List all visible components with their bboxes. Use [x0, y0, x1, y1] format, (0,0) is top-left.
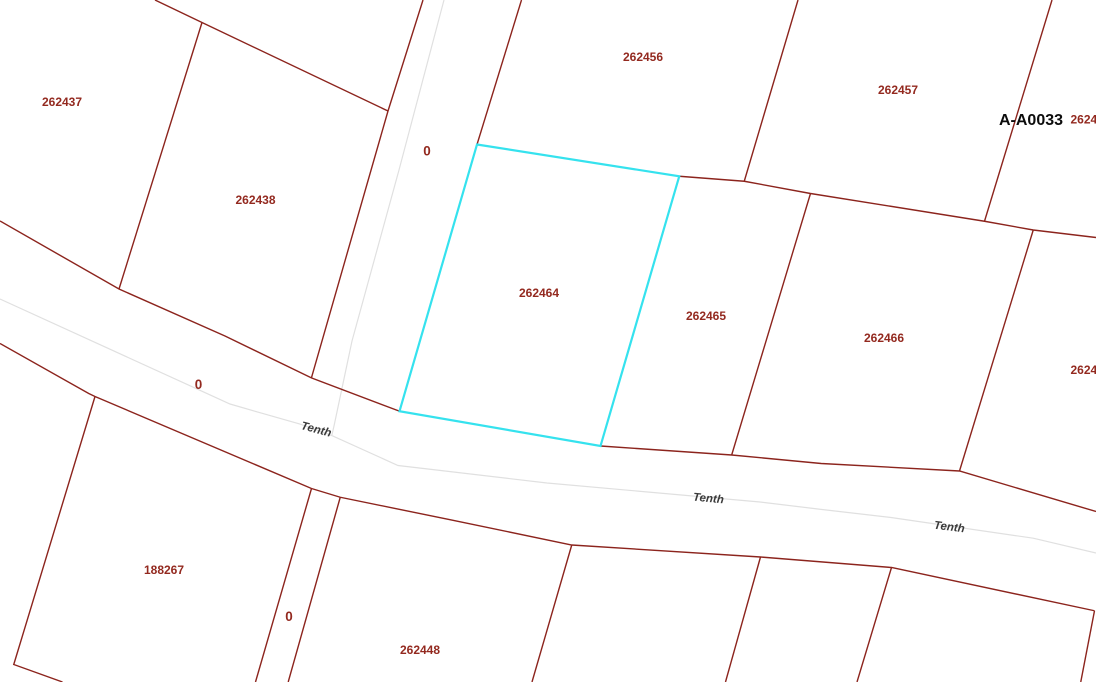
svg-text:262438: 262438 — [235, 193, 275, 207]
svg-text:2624: 2624 — [1071, 113, 1096, 127]
svg-text:0: 0 — [285, 609, 293, 624]
svg-text:262466: 262466 — [864, 331, 904, 345]
svg-text:262464: 262464 — [519, 286, 559, 300]
svg-text:0: 0 — [195, 377, 203, 392]
svg-text:262437: 262437 — [42, 95, 82, 109]
svg-text:188267: 188267 — [144, 563, 184, 577]
svg-text:262456: 262456 — [623, 50, 663, 64]
svg-text:262448: 262448 — [400, 643, 440, 657]
svg-text:262465: 262465 — [686, 309, 726, 323]
svg-text:262457: 262457 — [878, 83, 918, 97]
svg-text:A-A0033: A-A0033 — [999, 112, 1063, 129]
svg-text:0: 0 — [423, 144, 431, 159]
svg-text:2624: 2624 — [1071, 363, 1096, 377]
